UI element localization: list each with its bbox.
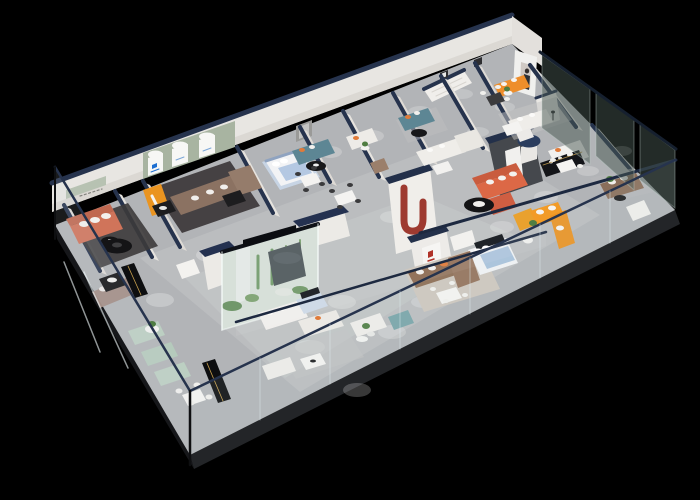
- dining-chair-dark: [355, 199, 361, 203]
- showroom-render-canvas: [0, 0, 700, 500]
- ceiling-light-glow: [490, 221, 514, 233]
- sofa-cushion: [511, 78, 517, 82]
- floorplan-render: [0, 0, 700, 500]
- sofa-cushion: [439, 144, 445, 148]
- sofa-cushion: [220, 185, 228, 190]
- sofa-cushion: [90, 217, 100, 223]
- sofa-cushion: [548, 206, 556, 211]
- sofa-cushion: [309, 145, 315, 149]
- sofa-cushion: [206, 190, 214, 195]
- sofa-cushion-orange: [353, 136, 359, 140]
- sofa-cushion: [427, 148, 433, 152]
- arch-window-top: [148, 151, 163, 159]
- dining-chair-dark: [347, 183, 353, 187]
- potted-plant: [504, 87, 510, 92]
- sofa-cushion: [101, 213, 111, 219]
- bed-pillow: [272, 162, 280, 167]
- dining-chair-white: [480, 91, 486, 95]
- sofa-cushion: [529, 113, 535, 117]
- person-figure-head: [525, 69, 529, 74]
- sofa-cushion-orange: [405, 115, 411, 119]
- coffee-table-black: [411, 129, 427, 137]
- sofa-cushion: [486, 180, 494, 185]
- dining-chair-white: [567, 152, 573, 156]
- dining-chair-white: [495, 85, 501, 89]
- dining-chair-white: [504, 97, 510, 101]
- dining-chair-dark: [319, 182, 325, 186]
- sofa-cushion: [498, 176, 506, 181]
- dining-chair-dark: [329, 189, 335, 193]
- dining-chair-white: [577, 164, 583, 168]
- sofa-cushion-orange: [315, 316, 321, 320]
- arch-window-top: [172, 142, 188, 150]
- dining-chair-dark: [337, 205, 343, 209]
- sofa-cushion: [501, 82, 507, 86]
- table-decor: [159, 206, 167, 210]
- table-tray: [473, 201, 485, 207]
- dining-chair-white: [550, 158, 556, 162]
- bed-pillow: [280, 159, 288, 164]
- sofa-cushion: [191, 196, 199, 201]
- dining-chair-dark: [311, 166, 317, 170]
- potted-plant: [362, 142, 368, 147]
- sofa-cushion: [509, 172, 517, 177]
- ceiling-light-glow: [146, 293, 174, 307]
- table-decor: [112, 243, 122, 248]
- dining-chair-dark: [295, 172, 301, 176]
- sofa-cushion: [536, 210, 544, 215]
- ceiling-light-glow: [343, 383, 371, 397]
- sofa-cushion-orange: [299, 148, 305, 152]
- sofa-cushion: [414, 111, 420, 115]
- dining-chair-dark: [303, 188, 309, 192]
- sofa-cushion-orange: [555, 148, 561, 152]
- arch-window-top: [199, 133, 215, 141]
- sofa-cushion: [517, 117, 523, 121]
